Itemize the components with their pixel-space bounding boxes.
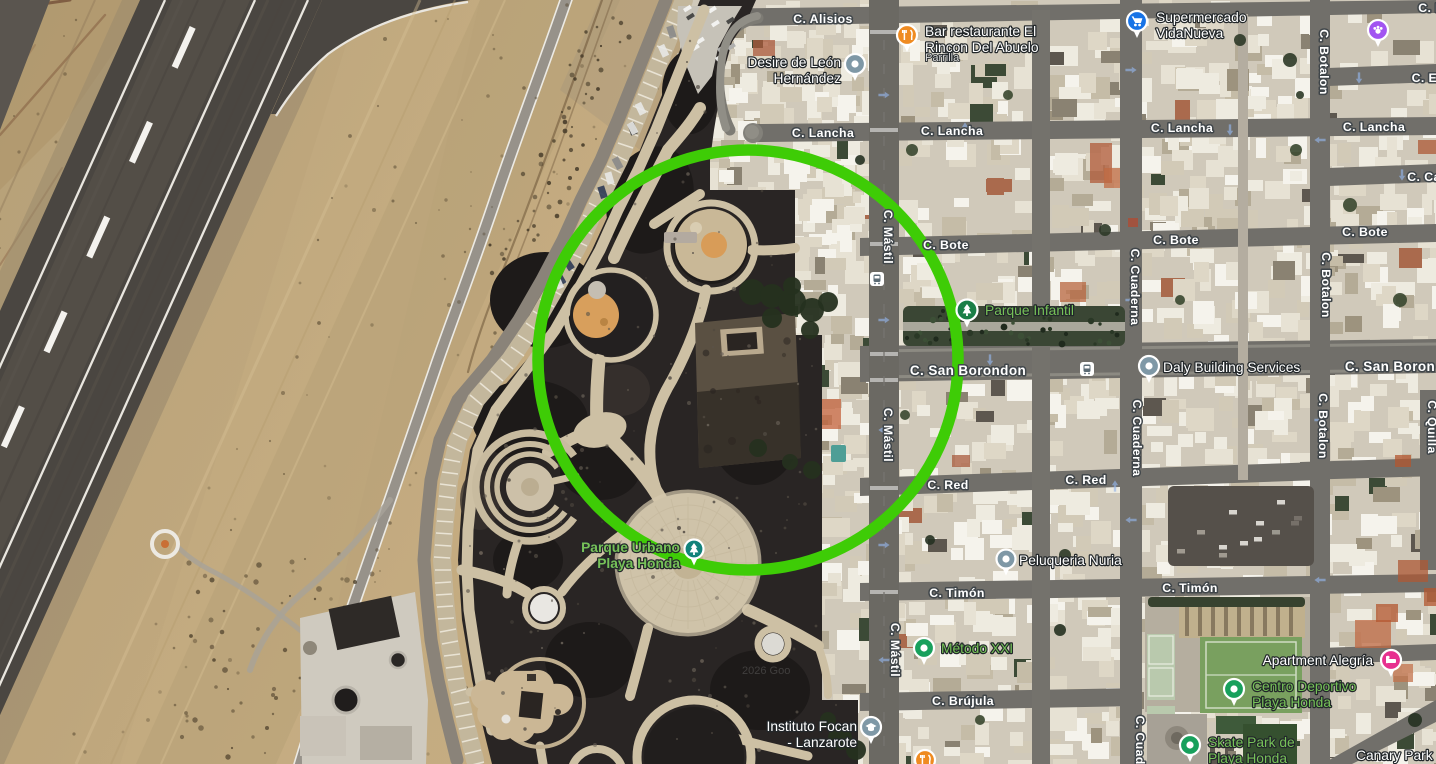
svg-text:C. Lancha: C. Lancha bbox=[792, 126, 854, 140]
svg-text:Método XXI: Método XXI bbox=[941, 641, 1013, 656]
svg-text:C. Red: C. Red bbox=[927, 478, 968, 492]
svg-text:C. Es: C. Es bbox=[1412, 71, 1436, 85]
svg-text:Apartment Alegría: Apartment Alegría bbox=[1263, 653, 1374, 668]
svg-text:C. E: C. E bbox=[1418, 1, 1436, 15]
svg-text:Skate Park dePlaya Honda: Skate Park dePlaya Honda bbox=[1208, 735, 1295, 764]
svg-text:C. Timón: C. Timón bbox=[929, 586, 985, 600]
svg-text:Canary Park: Canary Park bbox=[1356, 748, 1433, 763]
svg-text:C. Bote: C. Bote bbox=[1342, 225, 1388, 239]
svg-text:C. Alisios: C. Alisios bbox=[793, 12, 853, 26]
svg-text:C. Cuaderna: C. Cuaderna bbox=[1128, 249, 1142, 326]
svg-text:Bar restaurante ElRincon Del A: Bar restaurante ElRincon Del Abuelo bbox=[925, 24, 1039, 55]
svg-text:Daly Building Services: Daly Building Services bbox=[1163, 360, 1300, 375]
svg-text:Peluqueria Nuria: Peluqueria Nuria bbox=[1019, 553, 1122, 568]
svg-text:C. Red: C. Red bbox=[1065, 473, 1106, 487]
svg-text:C. Lancha: C. Lancha bbox=[921, 124, 983, 138]
svg-text:C. San Borondon: C. San Borondon bbox=[910, 363, 1026, 378]
svg-text:C. Cuaderna: C. Cuaderna bbox=[1130, 400, 1144, 477]
svg-text:C. Bote: C. Bote bbox=[1153, 233, 1199, 247]
svg-text:C. Quilla: C. Quilla bbox=[1425, 400, 1436, 453]
svg-text:2026 Goo: 2026 Goo bbox=[742, 665, 790, 677]
svg-text:Parrilla: Parrilla bbox=[925, 52, 960, 64]
svg-text:C. Mástil: C. Mástil bbox=[881, 408, 895, 462]
svg-text:C. Mástil: C. Mástil bbox=[881, 210, 895, 264]
svg-text:C. Bote: C. Bote bbox=[923, 238, 969, 252]
svg-text:C. Lancha: C. Lancha bbox=[1343, 120, 1405, 134]
svg-text:C. Mástil: C. Mástil bbox=[888, 623, 902, 677]
svg-text:C. Botalon: C. Botalon bbox=[1317, 29, 1331, 94]
svg-text:Parque Infantil: Parque Infantil bbox=[985, 303, 1074, 318]
svg-text:C. Brújula: C. Brújula bbox=[932, 694, 994, 708]
svg-text:C. Cuaderna: C. Cuaderna bbox=[1133, 716, 1147, 764]
svg-text:C. Ca: C. Ca bbox=[1407, 170, 1436, 184]
svg-text:C. Botalon: C. Botalon bbox=[1316, 393, 1330, 458]
svg-text:C. San Boron: C. San Boron bbox=[1345, 359, 1435, 374]
svg-text:C. Botalon: C. Botalon bbox=[1319, 252, 1333, 317]
svg-text:C. Lancha: C. Lancha bbox=[1151, 121, 1213, 135]
svg-text:C. Timón: C. Timón bbox=[1162, 581, 1218, 595]
